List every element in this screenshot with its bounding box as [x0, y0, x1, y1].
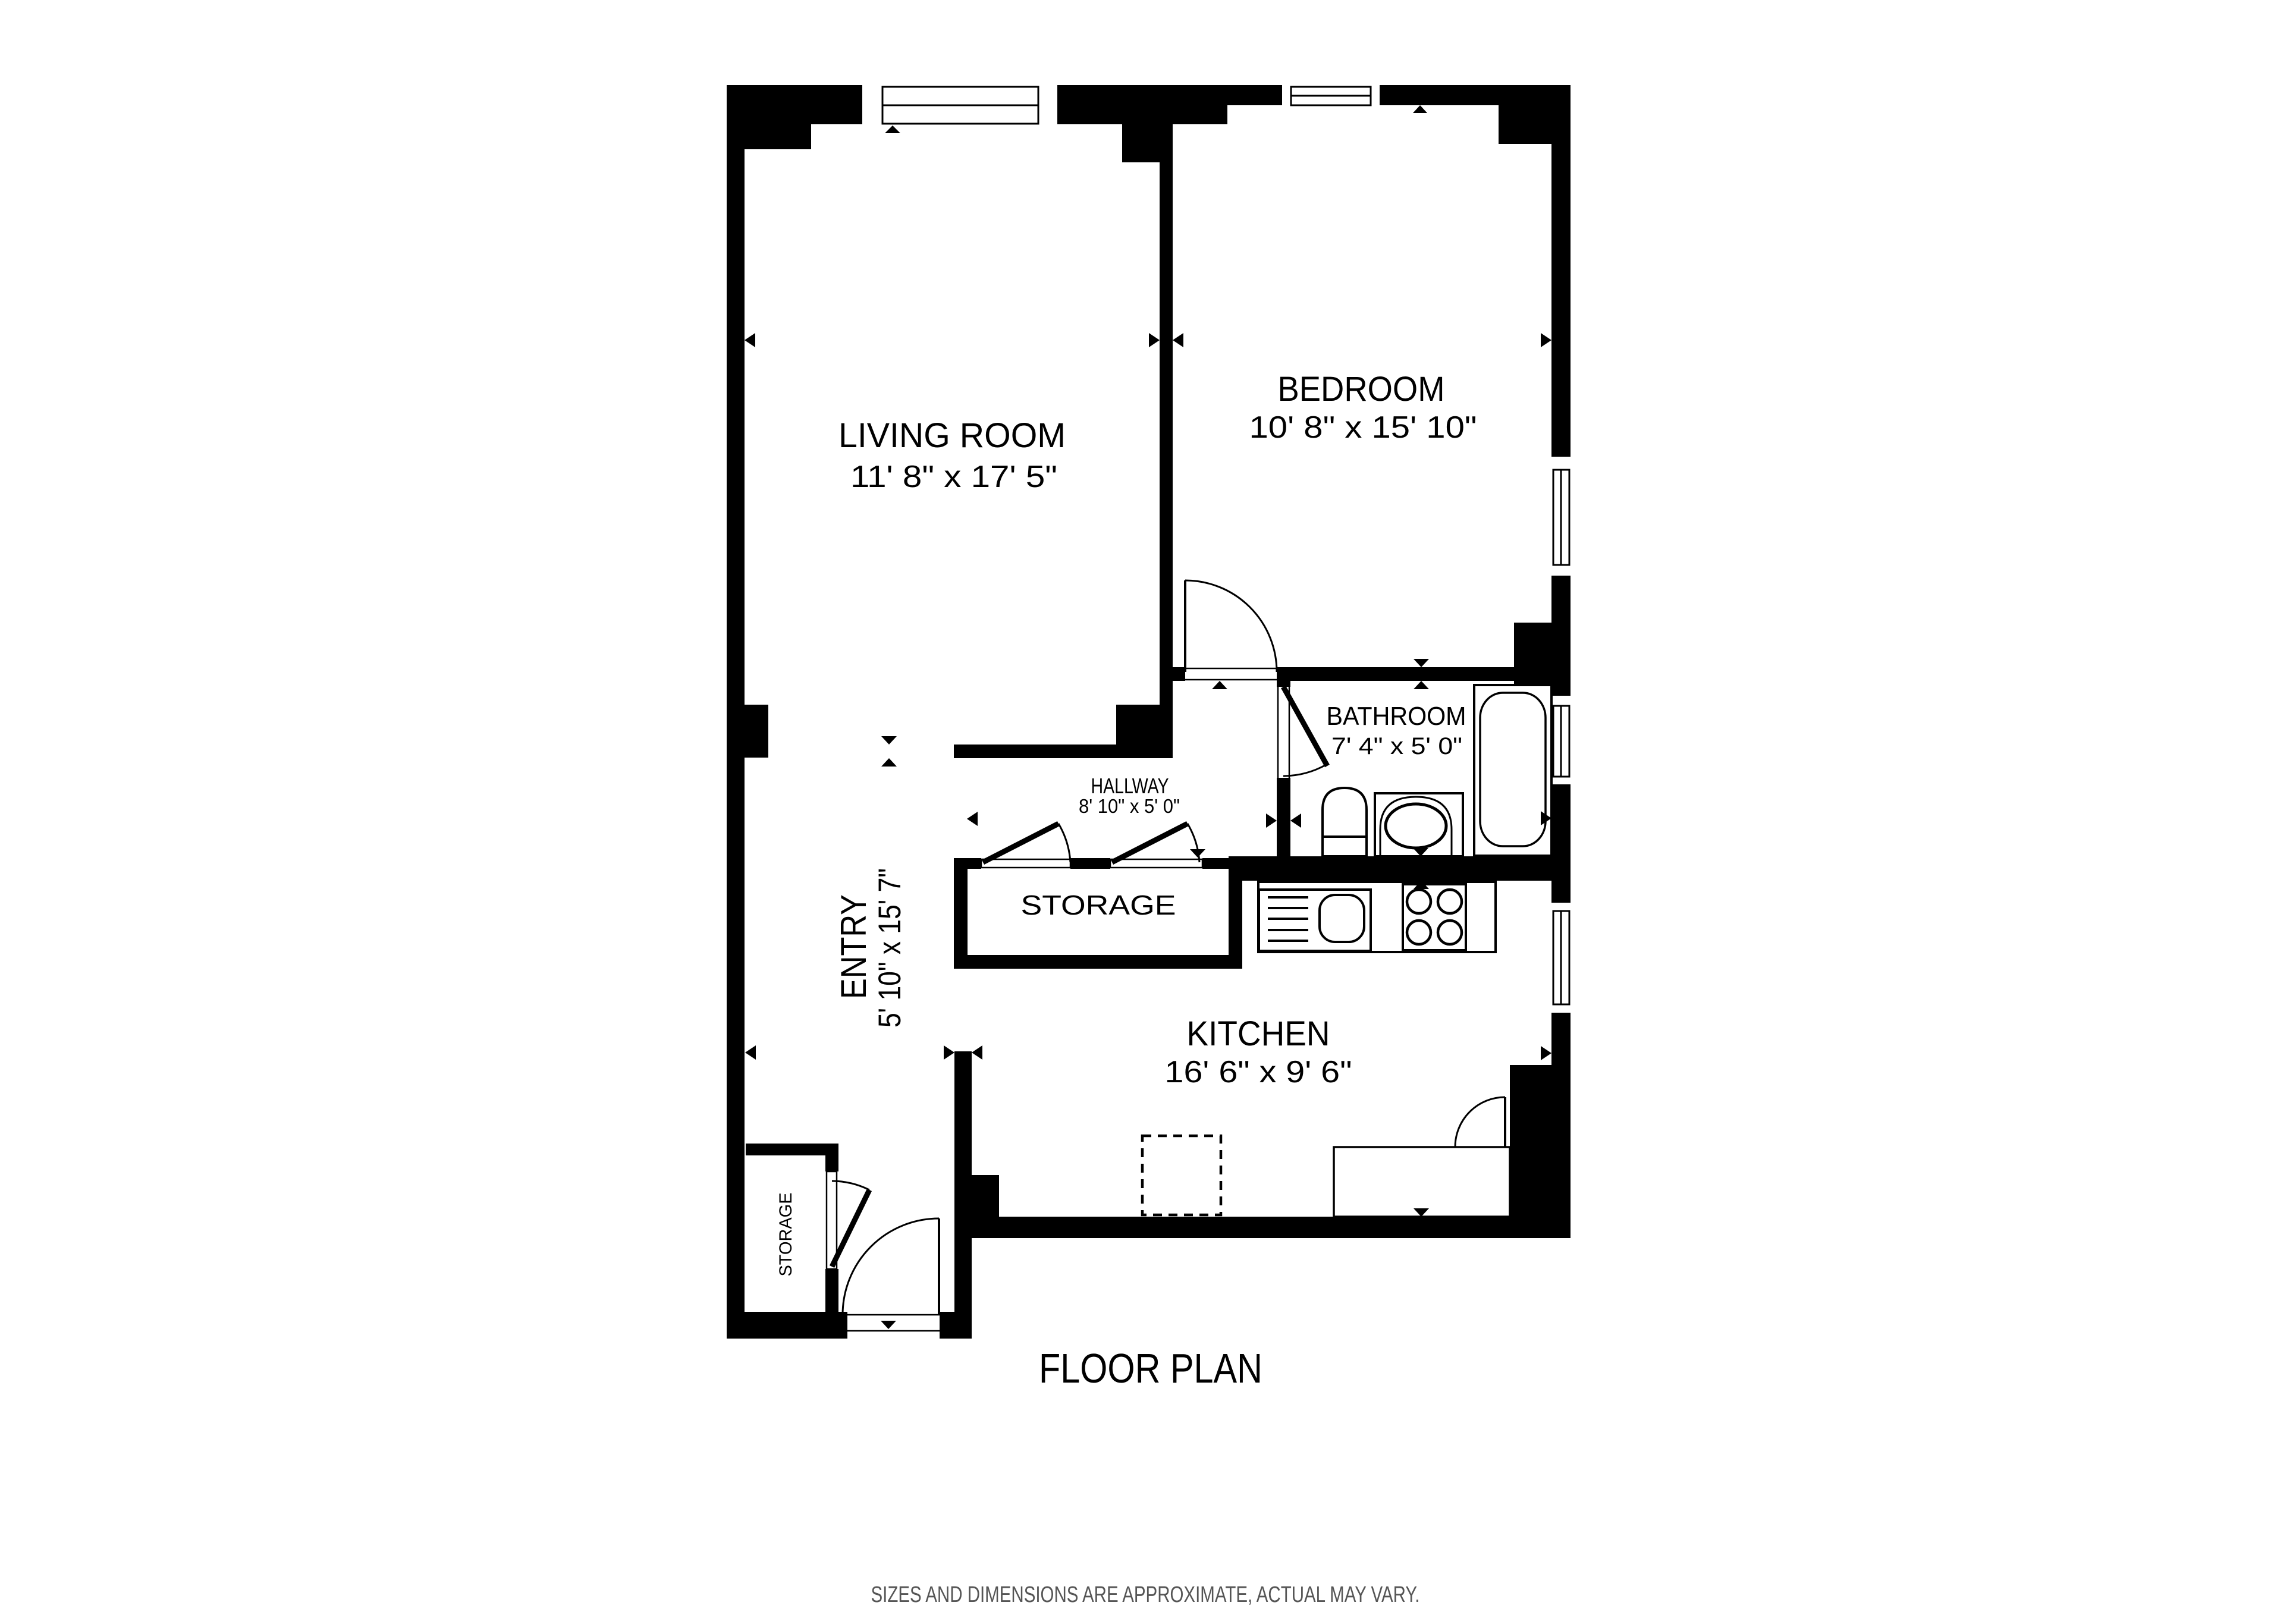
svg-text:16' 6" x 9' 6": 16' 6" x 9' 6": [1165, 1055, 1352, 1089]
svg-text:10' 8" x 15' 10": 10' 8" x 15' 10": [1249, 410, 1477, 445]
svg-text:8' 10" x 5' 0": 8' 10" x 5' 0": [1079, 795, 1180, 817]
svg-text:HALLWAY: HALLWAY: [1091, 774, 1169, 798]
svg-text:FLOOR PLAN: FLOOR PLAN: [1039, 1345, 1262, 1391]
svg-text:BEDROOM: BEDROOM: [1278, 370, 1445, 409]
svg-text:11' 8" x 17' 5": 11' 8" x 17' 5": [850, 460, 1057, 494]
svg-text:7' 4" x 5' 0": 7' 4" x 5' 0": [1331, 733, 1462, 759]
svg-text:BATHROOM: BATHROOM: [1327, 702, 1466, 731]
svg-text:5' 10" x 15' 7": 5' 10" x 15' 7": [872, 868, 907, 1028]
svg-text:SIZES AND DIMENSIONS ARE APPRO: SIZES AND DIMENSIONS ARE APPROXIMATE, AC…: [871, 1582, 1420, 1607]
svg-text:STORAGE: STORAGE: [776, 1193, 796, 1277]
svg-text:LIVING ROOM: LIVING ROOM: [838, 416, 1066, 455]
svg-text:STORAGE: STORAGE: [1021, 890, 1176, 921]
svg-text:KITCHEN: KITCHEN: [1187, 1014, 1330, 1053]
svg-text:ENTRY: ENTRY: [834, 894, 874, 999]
